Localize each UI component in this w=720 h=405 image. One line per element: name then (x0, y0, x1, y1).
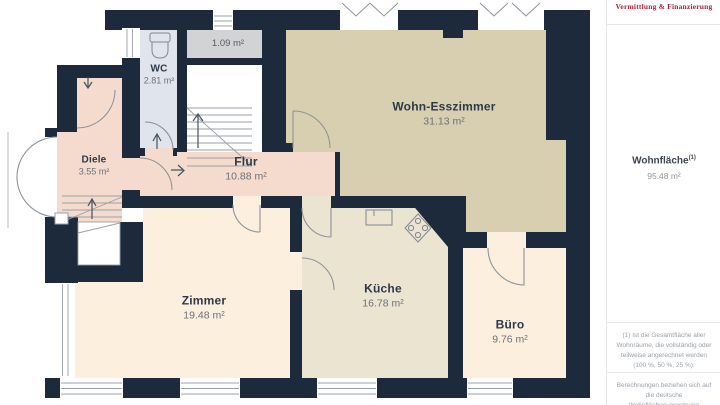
window-top (213, 10, 233, 30)
window-left-tall (58, 283, 74, 377)
room-buero (463, 248, 566, 378)
label-abstellraum: 1.09 m² (212, 38, 244, 50)
room-vestibule (77, 78, 122, 132)
balcony-door-opening-1 (340, 10, 398, 30)
room-wohn-esszimmer-lower (452, 196, 566, 232)
window-left-upper (122, 28, 140, 58)
label-diele: Diele 3.55 m² (79, 154, 110, 179)
room-name: Büro (492, 317, 528, 333)
window-bottom-3 (317, 378, 377, 398)
room-name: Diele (79, 154, 110, 167)
label-kueche: Küche 16.78 m² (362, 281, 403, 310)
entrance-door-leaf-bottom (17, 177, 57, 217)
room-name: WC (144, 63, 175, 76)
room-name: Flur (225, 154, 266, 170)
window-bottom-1 (60, 378, 123, 398)
window-bottom-2 (180, 378, 240, 398)
balcony-door-opening-2 (478, 10, 544, 30)
floorplan-page: Wohn-Esszimmer 31.13 m² Flur 10.88 m² Di… (0, 0, 720, 405)
total-area-footnote-marker: (1) (689, 155, 696, 161)
label-flur: Flur 10.88 m² (225, 154, 266, 183)
room-wc (140, 30, 177, 148)
brand-tagline: Vermittlung & Finanzierung (607, 0, 720, 25)
label-wohn-esszimmer: Wohn-Esszimmer 31.13 m² (392, 99, 495, 128)
room-area: 1.09 m² (212, 38, 244, 50)
label-buero: Büro 9.76 m² (492, 317, 528, 346)
total-area-label: Wohnfläche(1) (607, 155, 720, 166)
entrance-door-leaf-top (17, 137, 57, 177)
floorplan-drawing: Wohn-Esszimmer 31.13 m² Flur 10.88 m² Di… (0, 0, 600, 405)
understairs-void (78, 222, 120, 265)
room-name: Wohn-Esszimmer (392, 99, 495, 115)
window-bottom-4 (467, 378, 513, 398)
room-area: 16.78 m² (362, 297, 403, 311)
room-name: Zimmer (182, 293, 227, 309)
total-area-value: 95.48 m² (607, 171, 720, 181)
room-area: 31.13 m² (392, 115, 495, 129)
label-zimmer: Zimmer 19.48 m² (182, 293, 227, 322)
footnote-2: Berechnungen beziehen sich auf die deuts… (607, 372, 720, 405)
footnote-1: (1) Ist die Gesamtfläche aller Wohnräume… (607, 322, 720, 377)
info-sidebar: Vermittlung & Finanzierung Wohnfläche(1)… (606, 0, 720, 405)
room-area: 9.76 m² (492, 333, 528, 347)
room-area: 3.55 m² (79, 167, 110, 179)
room-area: 2.81 m² (144, 76, 175, 88)
label-wc: WC 2.81 m² (144, 63, 175, 88)
entrance-step (55, 213, 68, 224)
room-area: 10.88 m² (225, 170, 266, 184)
room-name: Küche (362, 281, 403, 297)
room-area: 19.48 m² (182, 309, 227, 323)
room-zimmer-left (75, 282, 143, 378)
total-area-label-text: Wohnfläche (632, 155, 688, 166)
total-area-block: Wohnfläche(1) 95.48 m² (607, 155, 720, 181)
